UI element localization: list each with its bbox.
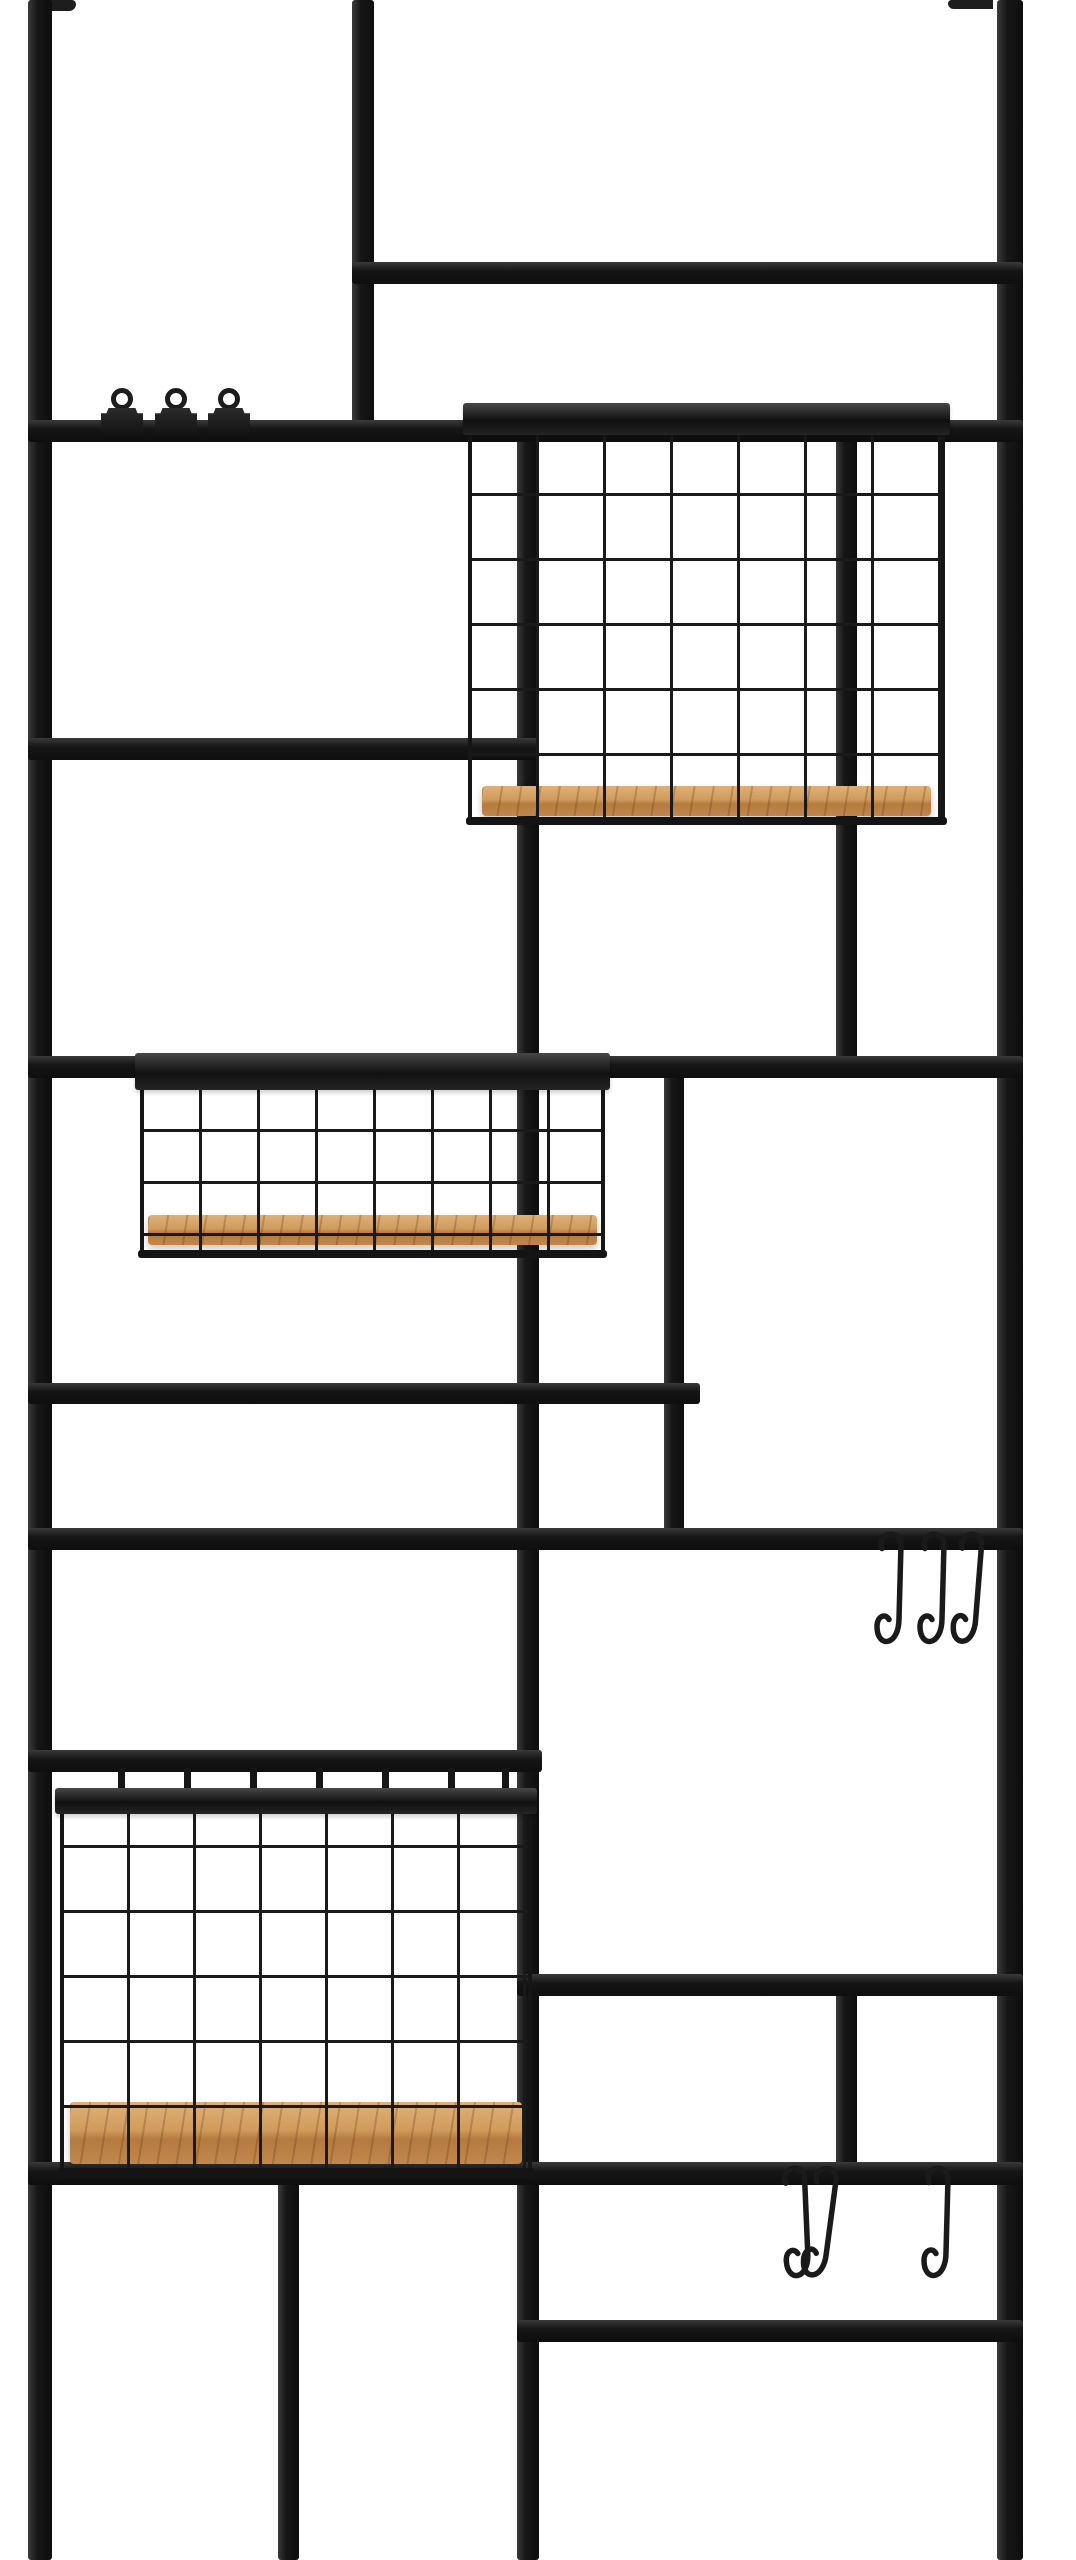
basket-bottom-wire [138, 1250, 607, 1258]
basket-rim [463, 403, 950, 435]
upright-mid-right [664, 1060, 684, 1550]
basket-wire-grid [468, 431, 945, 819]
s-hook [919, 2150, 955, 2305]
basket-wire-grid [140, 1086, 605, 1252]
clip-ring [111, 388, 133, 410]
clip-ring [218, 388, 240, 410]
rail-bottom-basket [28, 1750, 542, 1772]
wire-basket-top [468, 403, 945, 825]
rail-left-mid [28, 738, 539, 760]
wire-basket-bottom [60, 1788, 532, 2178]
bulldog-clip [208, 388, 250, 434]
bulldog-clip [101, 388, 143, 434]
rail-right-lower [517, 2320, 1023, 2342]
s-hook [946, 1515, 990, 1672]
wire-basket-middle [140, 1053, 605, 1258]
s-hook [872, 1516, 908, 1671]
mounting-bracket-right [948, 0, 993, 9]
rail-left-lower [28, 1383, 700, 1404]
clip-body [208, 408, 250, 434]
basket-wire-grid [60, 1810, 532, 2172]
wall-grid-organizer-photo [0, 0, 1076, 2560]
upright-bottom-left [278, 2172, 299, 2560]
basket-rim [55, 1788, 537, 1814]
clip-body [155, 408, 197, 434]
basket-rim [135, 1053, 610, 1090]
rail-upper-right [352, 262, 1023, 284]
basket-bottom-wire [58, 2168, 534, 2178]
upright-top-center [352, 0, 374, 442]
rail-right-upper [517, 1974, 1023, 1996]
s-hook [915, 1516, 951, 1671]
clip-ring [165, 388, 187, 410]
bulldog-clip [155, 388, 197, 434]
clip-body [101, 408, 143, 434]
basket-bottom-wire [466, 817, 947, 825]
